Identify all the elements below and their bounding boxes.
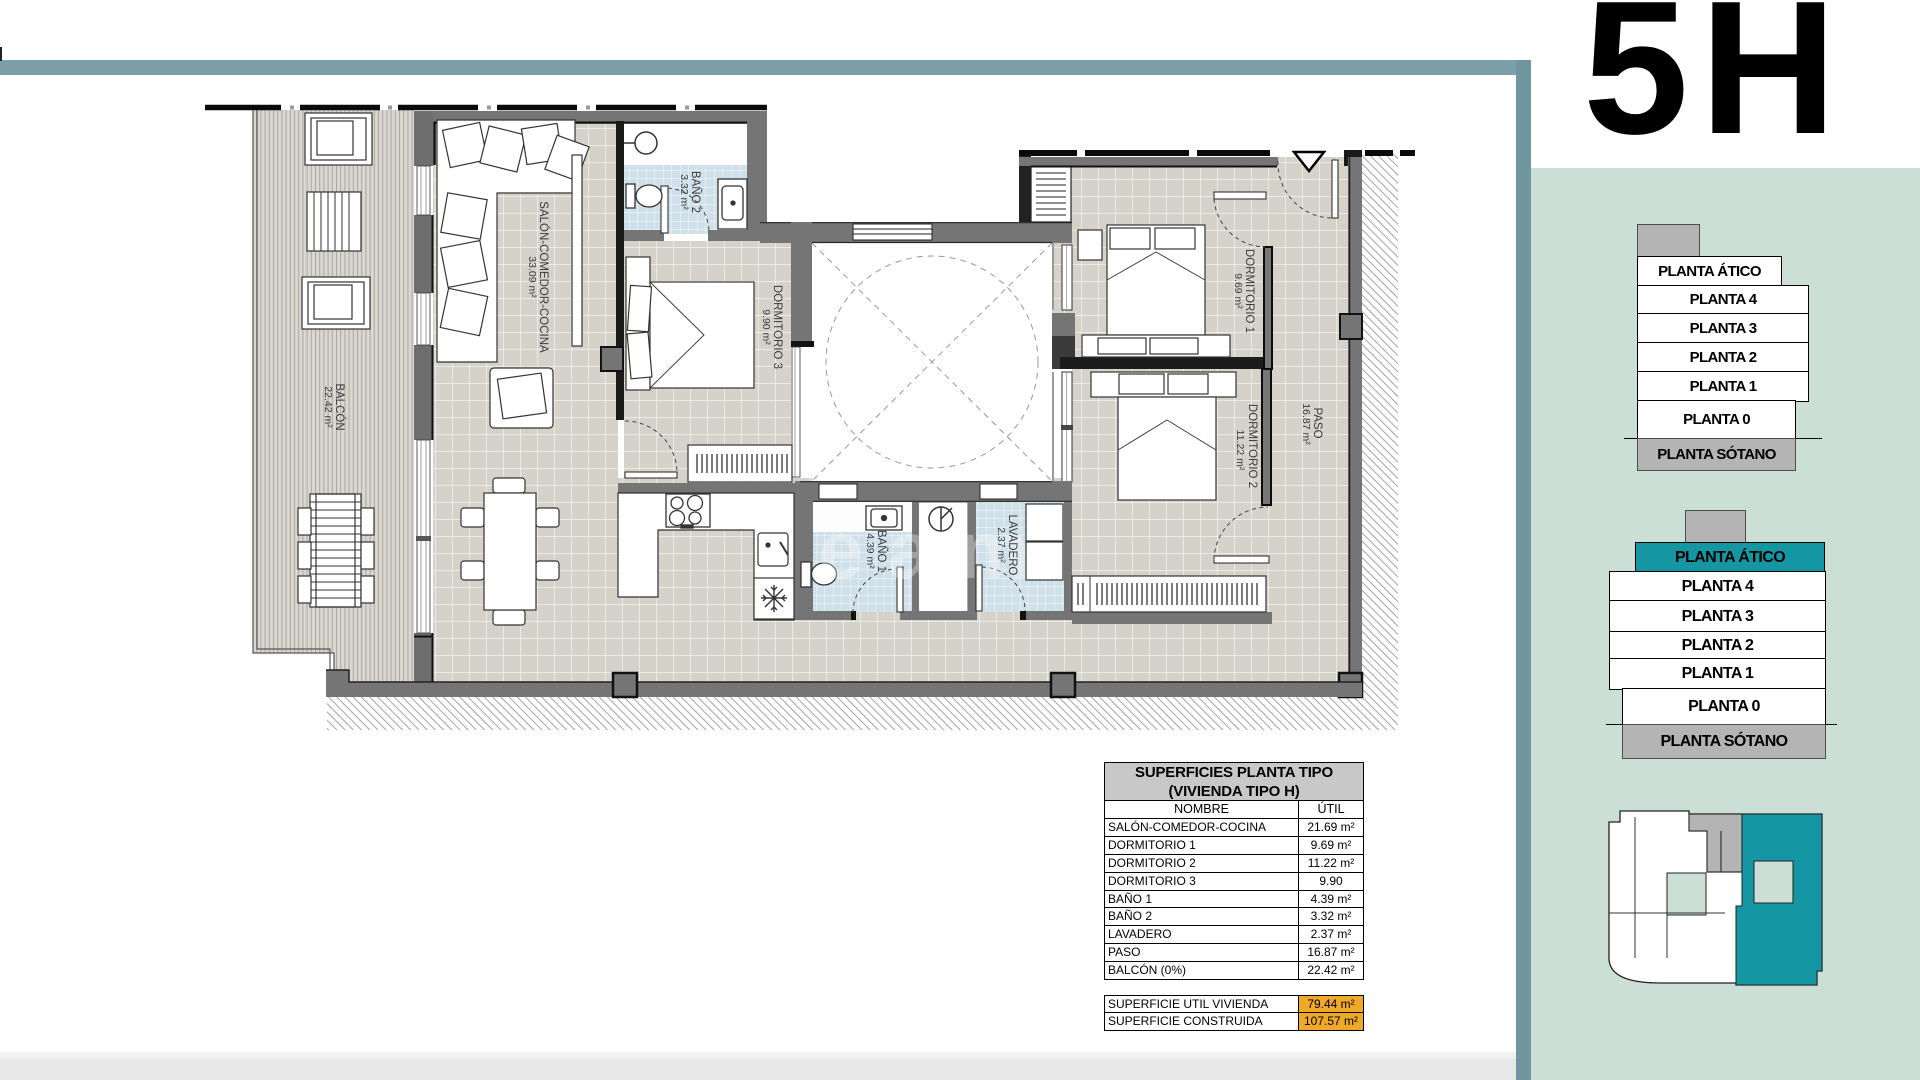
svg-text:16.87 m²: 16.87 m² (1300, 403, 1312, 445)
svg-text:2.37 m²: 2.37 m² (995, 527, 1007, 563)
svg-text:22.42 m²: 22.42 m² (322, 386, 334, 428)
svg-text:3.32 m²: 3.32 m² (678, 174, 690, 210)
svg-text:4.39 m²: 4.39 m² (864, 533, 876, 569)
svg-text:33.09 m²: 33.09 m² (526, 256, 538, 298)
svg-text:9.69 m²: 9.69 m² (1232, 273, 1244, 309)
svg-text:DORMITORIO 2: DORMITORIO 2 (1246, 404, 1258, 488)
svg-text:11.22 m²: 11.22 m² (1234, 430, 1246, 471)
svg-text:9.90 m²: 9.90 m² (760, 309, 772, 345)
